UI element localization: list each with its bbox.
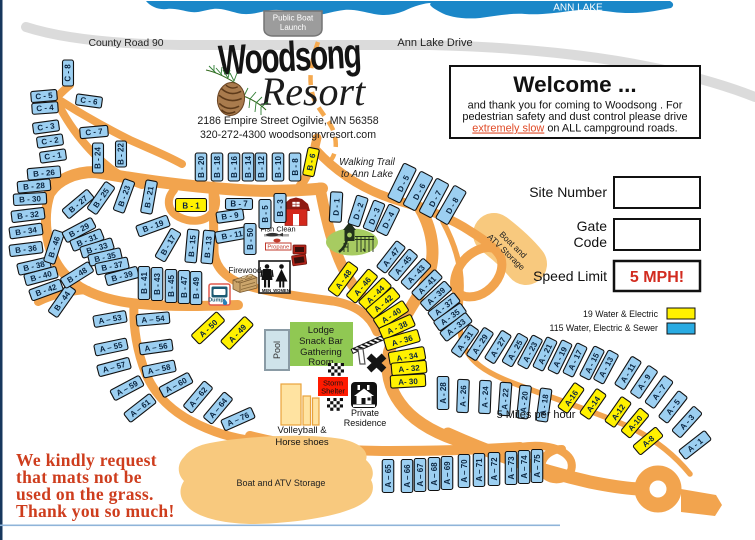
svg-text:B - 20: B - 20 xyxy=(197,156,206,178)
svg-text:extremely slow on ALL campgrou: extremely slow on ALL campground roads. xyxy=(472,123,677,135)
svg-text:Boat and ATV Storage: Boat and ATV Storage xyxy=(237,478,326,488)
svg-text:Volleyball &: Volleyball & xyxy=(277,425,327,436)
svg-text:C - 5: C - 5 xyxy=(35,91,54,102)
svg-text:B - 7: B - 7 xyxy=(230,200,248,209)
svg-text:A - 24: A - 24 xyxy=(480,386,490,408)
svg-text:A – 71: A – 71 xyxy=(475,458,484,482)
svg-text:5 Miles per hour: 5 Miles per hour xyxy=(497,409,576,421)
svg-text:B - 10: B - 10 xyxy=(274,156,283,178)
svg-text:B - 15: B - 15 xyxy=(187,234,198,257)
svg-text:320-272-4300 woodsongrvresor: 320-272-4300 woodsongrvresort.com xyxy=(200,129,376,141)
svg-text:A – 67: A – 67 xyxy=(416,463,425,487)
svg-text:A - 22: A - 22 xyxy=(500,387,511,410)
svg-text:B - 50: B - 50 xyxy=(246,228,255,250)
svg-text:B - 12: B - 12 xyxy=(257,156,266,178)
svg-text:B - 26: B - 26 xyxy=(33,168,56,179)
svg-text:A – 66: A – 66 xyxy=(403,464,412,488)
svg-text:B - 24: B - 24 xyxy=(94,147,103,169)
svg-text:B - 8: B - 8 xyxy=(291,158,300,176)
svg-text:ANN LAKE: ANN LAKE xyxy=(553,3,603,14)
svg-text:Dump: Dump xyxy=(208,298,224,304)
svg-text:D - 1: D - 1 xyxy=(332,198,342,216)
svg-text:A – 70: A – 70 xyxy=(460,459,469,483)
svg-text:Private: Private xyxy=(351,408,379,418)
svg-text:A – 65: A – 65 xyxy=(384,464,393,488)
svg-text:Site Number: Site Number xyxy=(529,184,607,200)
svg-text:C - 8: C - 8 xyxy=(64,64,73,82)
svg-text:B - 28: B - 28 xyxy=(23,181,46,192)
svg-text:Firewood: Firewood xyxy=(229,266,262,275)
svg-text:A - 28: A - 28 xyxy=(439,382,448,404)
svg-text:Residence: Residence xyxy=(344,418,387,428)
svg-text:Pool: Pool xyxy=(272,341,282,359)
svg-text:B - 41: B - 41 xyxy=(140,272,149,294)
svg-text:C - 4: C - 4 xyxy=(36,103,54,113)
svg-text:A - 26: A - 26 xyxy=(458,385,468,407)
svg-text:County Road 90: County Road 90 xyxy=(88,38,163,49)
svg-text:and thank you for coming to Wo: and thank you for coming to Woodsong . F… xyxy=(468,100,683,112)
svg-text:A – 74: A – 74 xyxy=(520,455,529,479)
svg-text:Resοrt: Resοrt xyxy=(260,69,366,114)
svg-text:WOMEN: WOMEN xyxy=(273,288,290,293)
svg-text:Launch: Launch xyxy=(280,23,306,32)
svg-text:Gate: Gate xyxy=(577,218,608,234)
svg-text:Snack Bar: Snack Bar xyxy=(299,336,343,347)
svg-text:to Ann Lake: to Ann Lake xyxy=(341,169,393,180)
svg-text:B - 3: B - 3 xyxy=(276,199,285,217)
svg-text:B - 43: B - 43 xyxy=(153,273,162,295)
svg-text:19 Water & Electric: 19 Water & Electric xyxy=(583,309,659,319)
svg-text:2186 Empire Street Ogilvie,: 2186 Empire Street Ogilvie, MN 56358 xyxy=(197,115,378,127)
svg-text:Welcome ...: Welcome ... xyxy=(513,72,636,97)
svg-text:B - 49: B - 49 xyxy=(192,277,201,299)
svg-text:Public Boat: Public Boat xyxy=(273,14,314,23)
svg-text:B - 16: B - 16 xyxy=(230,156,239,178)
svg-text:Lodge: Lodge xyxy=(308,325,334,336)
svg-text:A – 68: A – 68 xyxy=(430,462,439,486)
svg-text:A – 75: A – 75 xyxy=(533,454,542,478)
svg-text:B - 22: B - 22 xyxy=(117,143,126,165)
svg-text:A - 32: A - 32 xyxy=(398,363,421,374)
svg-text:Speed Limit: Speed Limit xyxy=(533,268,607,284)
svg-text:B - 18: B - 18 xyxy=(213,156,222,178)
svg-text:MEN: MEN xyxy=(262,288,271,293)
svg-text:Thank you so much!: Thank you so much! xyxy=(16,501,175,521)
svg-text:B - 13: B - 13 xyxy=(203,235,214,258)
svg-text:A – 72: A – 72 xyxy=(490,457,499,481)
svg-text:B - 47: B - 47 xyxy=(180,276,189,298)
svg-text:Ann Lake Drive: Ann Lake Drive xyxy=(397,37,472,49)
svg-text:B - 5: B - 5 xyxy=(261,205,270,223)
svg-text:Horse shoes: Horse shoes xyxy=(275,437,329,448)
svg-text:B - 30: B - 30 xyxy=(19,194,42,204)
svg-text:B - 14: B - 14 xyxy=(244,156,253,178)
svg-text:Propane: Propane xyxy=(267,245,289,251)
svg-text:C - 7: C - 7 xyxy=(85,127,104,138)
svg-text:A – 73: A – 73 xyxy=(507,456,516,480)
svg-text:pedestrian safety and dust con: pedestrian safety and dust control pleas… xyxy=(462,111,687,123)
svg-text:5 MPH!: 5 MPH! xyxy=(630,269,684,286)
svg-text:115 Water, Electric & Sewer: 115 Water, Electric & Sewer xyxy=(549,323,658,333)
svg-text:A- 30: A- 30 xyxy=(398,377,419,387)
svg-text:B - 45: B - 45 xyxy=(167,275,176,297)
svg-text:Shelter: Shelter xyxy=(321,387,345,396)
svg-text:A – 69: A – 69 xyxy=(443,461,452,485)
svg-text:B - 1: B - 1 xyxy=(182,202,200,211)
svg-text:Walking Trail: Walking Trail xyxy=(339,157,396,168)
svg-text:Code: Code xyxy=(574,234,608,250)
